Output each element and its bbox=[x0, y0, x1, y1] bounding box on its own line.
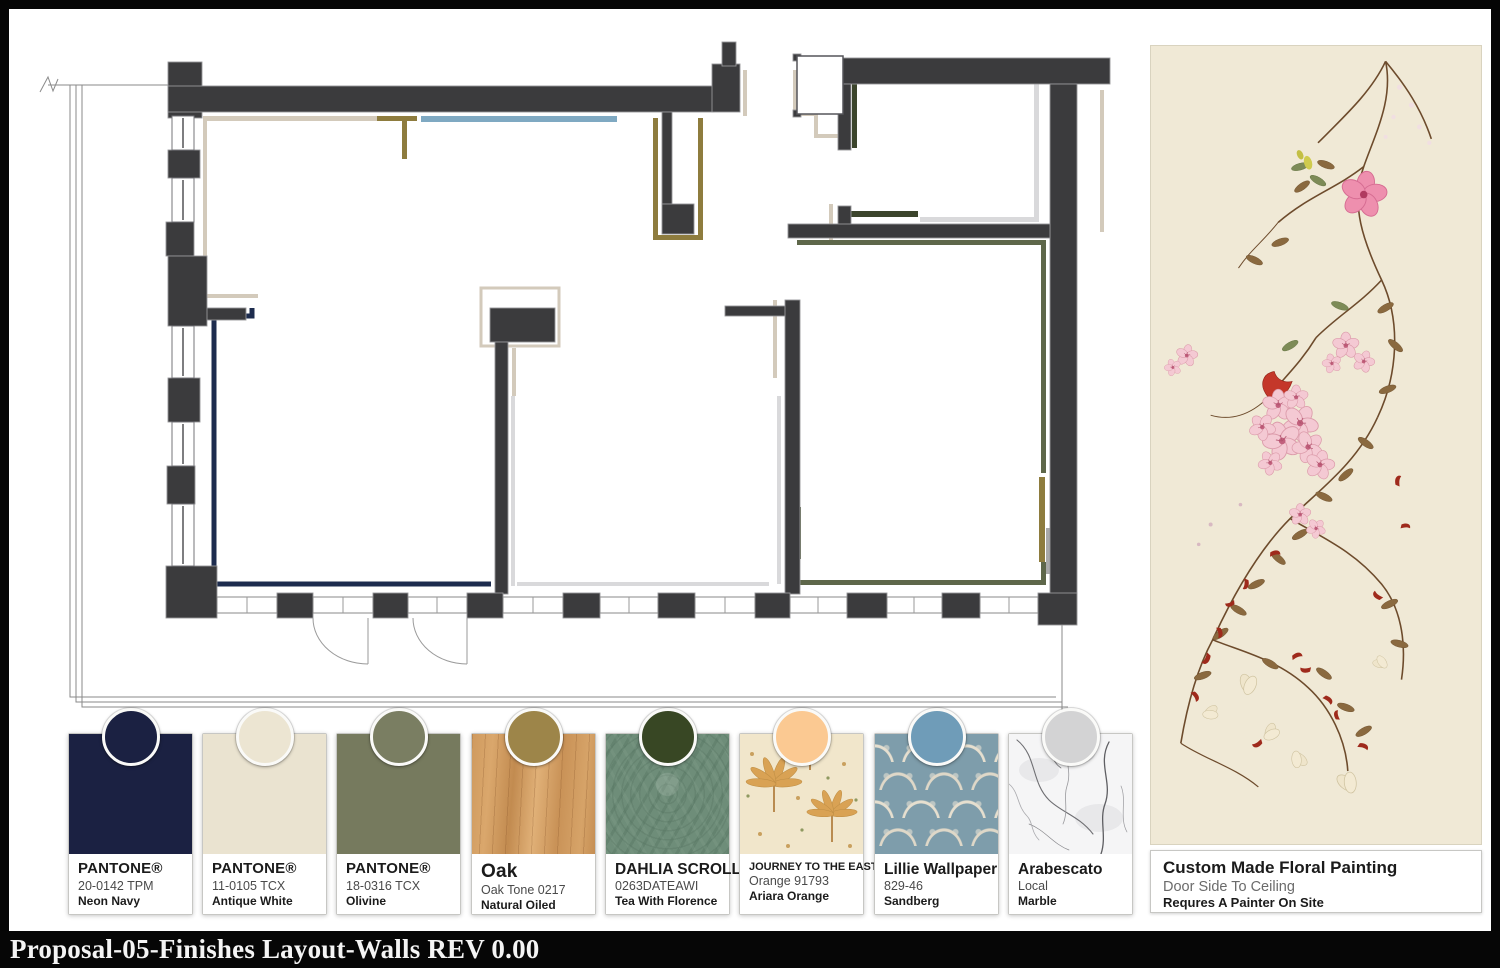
swatch-brand: Oak bbox=[481, 861, 586, 882]
swatch-name: Marble bbox=[1018, 894, 1123, 909]
color-dot bbox=[1042, 708, 1100, 766]
swatch-caption: PANTONE® 11-0105 TCX Antique White bbox=[203, 854, 326, 914]
color-dot bbox=[370, 708, 428, 766]
swatch-card-antique-white: PANTONE® 11-0105 TCX Antique White bbox=[202, 733, 327, 915]
swatch-code: Orange 91793 bbox=[749, 874, 854, 889]
swatch-caption: JOURNEY TO THE EAST Orange 91793 Ariara … bbox=[740, 854, 863, 914]
swatch-caption: PANTONE® 20-0142 TPM Neon Navy bbox=[69, 854, 192, 914]
swatch-brand: PANTONE® bbox=[212, 861, 317, 878]
finishes-board: PANTONE® 20-0142 TPM Neon Navy PANTONE® … bbox=[0, 0, 1500, 968]
swatch-card-arabescato: Arabescato Local Marble bbox=[1008, 733, 1133, 915]
title-bar: Proposal-05-Finishes Layout-Walls REV 0.… bbox=[0, 931, 1500, 968]
swatch-caption: DAHLIA SCROLL 0263DATEAWI Tea With Flore… bbox=[606, 854, 729, 914]
painting-note: Requres A Painter On Site bbox=[1163, 895, 1469, 911]
painting-subtitle: Door Side To Ceiling bbox=[1163, 879, 1469, 896]
swatch-code: 18-0316 TCX bbox=[346, 879, 451, 894]
color-dot bbox=[639, 708, 697, 766]
swatch-brand: Arabescato bbox=[1018, 861, 1123, 878]
drawing-title: Proposal-05-Finishes Layout-Walls REV 0.… bbox=[0, 931, 1500, 967]
swatch-brand: PANTONE® bbox=[78, 861, 183, 878]
hibiscus bbox=[1339, 170, 1388, 219]
swatch-code: 20-0142 TPM bbox=[78, 879, 183, 894]
swatch-brand: PANTONE® bbox=[346, 861, 451, 878]
buds bbox=[1197, 85, 1432, 547]
swatch-card-journey-to-the-east: JOURNEY TO THE EAST Orange 91793 Ariara … bbox=[739, 733, 864, 915]
swatch-caption: Oak Oak Tone 0217 Natural Oiled bbox=[472, 854, 595, 914]
floral-painting bbox=[1151, 46, 1481, 844]
swatch-brand: DAHLIA SCROLL bbox=[615, 861, 720, 878]
swatch-caption: Arabescato Local Marble bbox=[1009, 854, 1132, 914]
swatch-code: 0263DATEAWI bbox=[615, 879, 720, 894]
swatch-caption: PANTONE® 18-0316 TCX Olivine bbox=[337, 854, 460, 914]
walls bbox=[166, 42, 1110, 625]
color-dot bbox=[773, 708, 831, 766]
color-dot bbox=[505, 708, 563, 766]
accent-lines bbox=[196, 70, 1104, 586]
painting-title: Custom Made Floral Painting bbox=[1163, 858, 1469, 878]
swatch-code: 11-0105 TCX bbox=[212, 879, 317, 894]
swatch-caption: Lillie Wallpaper 829-46 Sandberg bbox=[875, 854, 998, 914]
door-swings bbox=[313, 618, 467, 664]
swatch-name: Natural Oiled bbox=[481, 898, 586, 913]
swatch-name: Sandberg bbox=[884, 894, 989, 909]
cream-flowers bbox=[1199, 652, 1392, 800]
swatch-name: Tea With Florence bbox=[615, 894, 720, 909]
swatch-name: Ariara Orange bbox=[749, 889, 854, 904]
blossom-clusters bbox=[1161, 332, 1378, 543]
swatch-card-olivine: PANTONE® 18-0316 TCX Olivine bbox=[336, 733, 461, 915]
swatch-code: Local bbox=[1018, 879, 1123, 894]
swatch-card-neon-navy: PANTONE® 20-0142 TPM Neon Navy bbox=[68, 733, 193, 915]
swatch-card-oak: Oak Oak Tone 0217 Natural Oiled bbox=[471, 733, 596, 915]
swatch-card-lillie: Lillie Wallpaper 829-46 Sandberg bbox=[874, 733, 999, 915]
swatch-name: Olivine bbox=[346, 894, 451, 909]
swatch-name: Neon Navy bbox=[78, 894, 183, 909]
color-dot bbox=[236, 708, 294, 766]
swatch-code: Oak Tone 0217 bbox=[481, 883, 586, 898]
painting-caption: Custom Made Floral Painting Door Side To… bbox=[1150, 850, 1482, 913]
swatch-brand: Lillie Wallpaper bbox=[884, 861, 989, 878]
bottom-wall-windows bbox=[217, 597, 1038, 613]
floral-painting-panel bbox=[1150, 45, 1482, 845]
swatch-code: 829-46 bbox=[884, 879, 989, 894]
color-dot bbox=[908, 708, 966, 766]
swatch-name: Antique White bbox=[212, 894, 317, 909]
color-dot bbox=[102, 708, 160, 766]
swatch-card-dahlia-scroll: DAHLIA SCROLL 0263DATEAWI Tea With Flore… bbox=[605, 733, 730, 915]
swatch-brand: JOURNEY TO THE EAST bbox=[749, 861, 854, 873]
